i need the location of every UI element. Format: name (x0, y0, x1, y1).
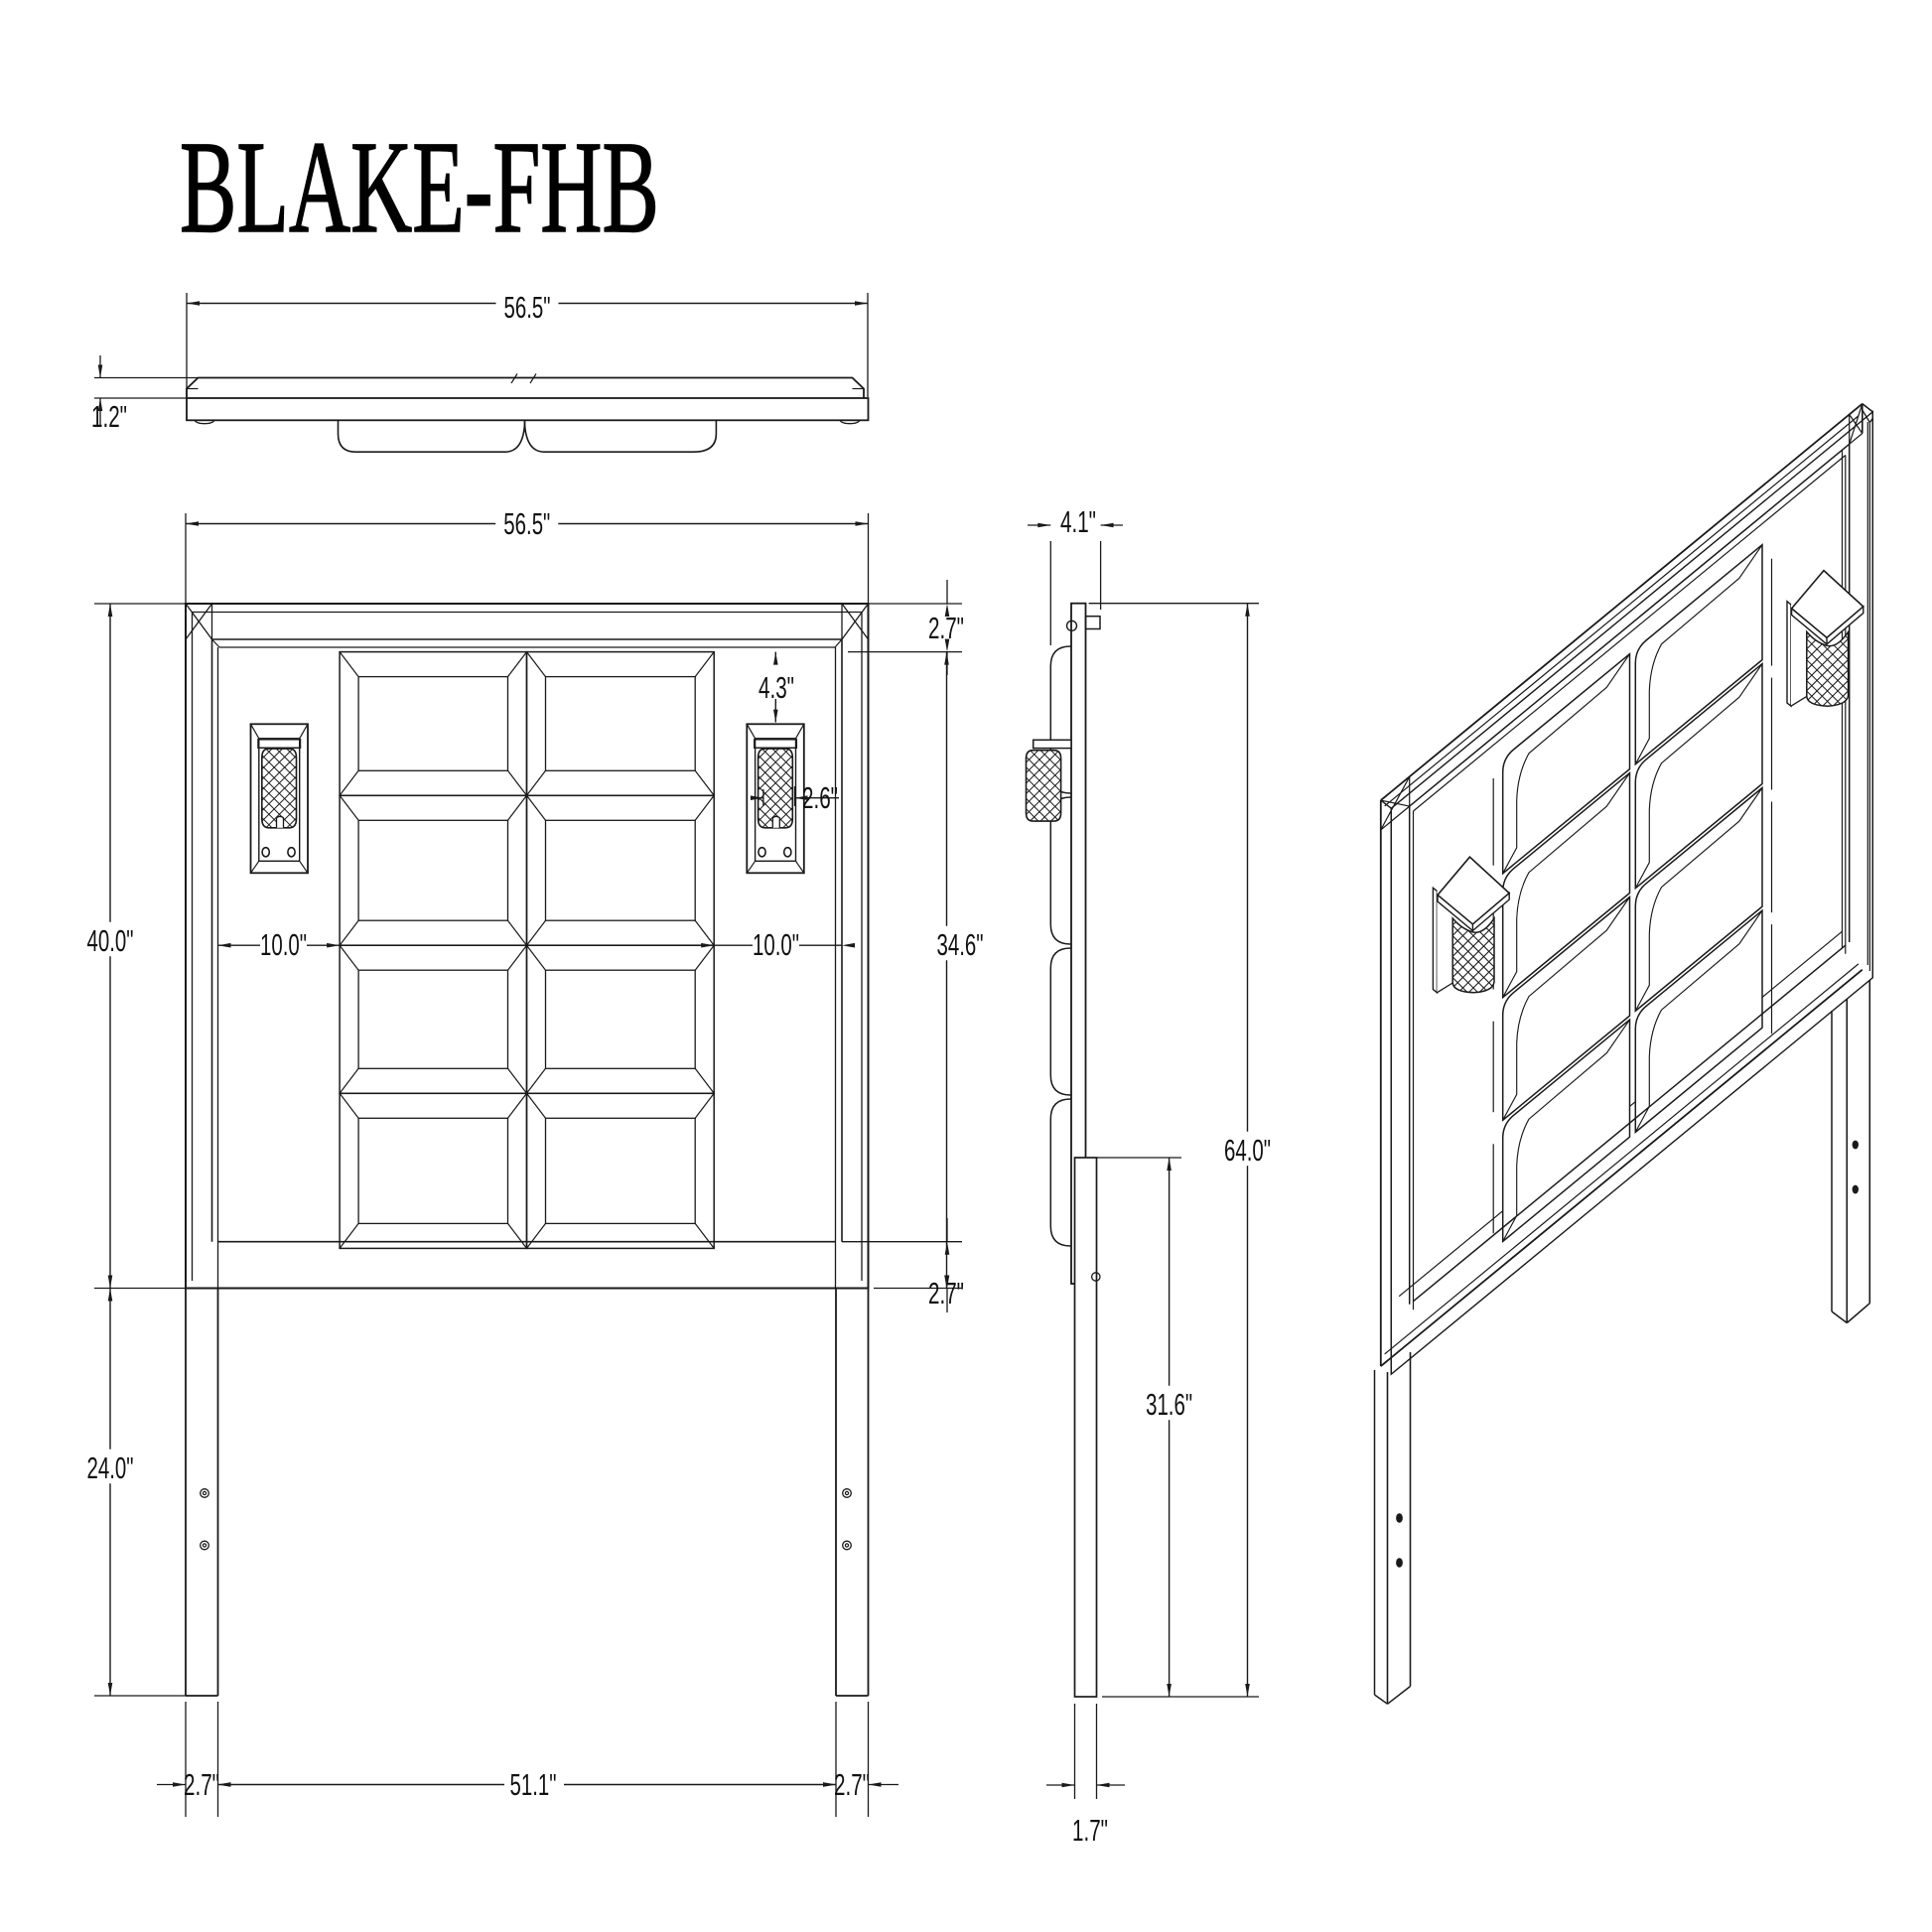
svg-text:64.0": 64.0" (1224, 1133, 1271, 1168)
svg-text:1.2": 1.2" (91, 399, 127, 434)
svg-text:1.7": 1.7" (1072, 1813, 1108, 1848)
svg-text:2.6": 2.6" (802, 780, 838, 815)
svg-text:4.1": 4.1" (1060, 504, 1096, 539)
svg-text:2.7": 2.7" (184, 1767, 219, 1802)
svg-text:31.6": 31.6" (1146, 1387, 1192, 1422)
svg-text:56.5": 56.5" (504, 290, 551, 325)
svg-text:10.0": 10.0" (260, 927, 307, 962)
svg-text:2.7": 2.7" (928, 611, 964, 645)
svg-text:40.0": 40.0" (87, 923, 134, 958)
svg-text:4.3": 4.3" (759, 670, 794, 705)
svg-text:2.7": 2.7" (928, 1276, 964, 1311)
svg-text:10.0": 10.0" (753, 927, 799, 962)
svg-text:56.5": 56.5" (503, 506, 550, 541)
svg-text:24.0": 24.0" (87, 1450, 134, 1485)
svg-text:51.1": 51.1" (510, 1767, 557, 1802)
svg-text:34.6": 34.6" (937, 927, 984, 962)
svg-text:2.7": 2.7" (834, 1767, 870, 1802)
